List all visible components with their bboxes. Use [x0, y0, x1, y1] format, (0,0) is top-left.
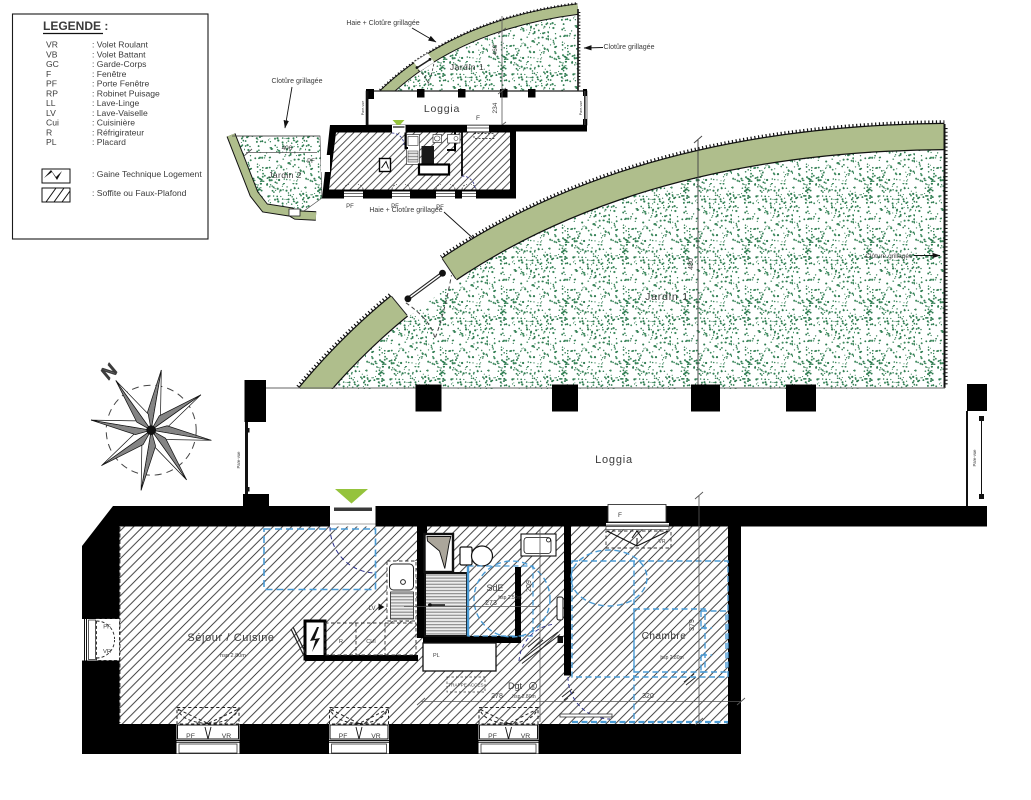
svg-text:: Fenêtre: : Fenêtre	[92, 69, 127, 79]
svg-text:PF: PF	[46, 79, 57, 89]
svg-text:TRAPPE ACCES: TRAPPE ACCES	[448, 683, 483, 688]
svg-text:LEGENDE :: LEGENDE :	[43, 19, 108, 33]
svg-text:Loggia: Loggia	[595, 454, 633, 466]
svg-text:Jardin 1: Jardin 1	[450, 62, 484, 72]
svg-text:LV: LV	[46, 108, 56, 118]
svg-text:PF: PF	[346, 204, 354, 210]
svg-text:PF: PF	[186, 733, 195, 740]
svg-text:Clotûre grillagée: Clotûre grillagée	[604, 44, 655, 51]
svg-text:PF: PF	[488, 733, 497, 740]
svg-text:: Lave-Vaiselle: : Lave-Vaiselle	[92, 108, 148, 118]
svg-text:R: R	[339, 639, 343, 645]
svg-text:Loggia: Loggia	[424, 103, 460, 115]
svg-text:234: 234	[492, 102, 499, 113]
svg-text:Jardin 1: Jardin 1	[645, 291, 689, 303]
svg-text:Clôture grillagée: Clôture grillagée	[865, 253, 913, 260]
svg-text:: Porte Fenêtre: : Porte Fenêtre	[92, 79, 150, 89]
svg-text:RP: RP	[46, 88, 58, 98]
svg-text:: Robinet Puisage: : Robinet Puisage	[92, 88, 160, 98]
svg-text:LL: LL	[46, 98, 56, 108]
svg-text:273: 273	[485, 600, 497, 607]
svg-text:VR: VR	[521, 733, 531, 740]
svg-text:VR: VR	[222, 733, 232, 740]
svg-text:PL: PL	[433, 653, 440, 659]
svg-text:R: R	[46, 127, 52, 137]
svg-text:Pare-vue: Pare-vue	[579, 101, 583, 116]
svg-text:VR: VR	[46, 40, 58, 50]
svg-text:: Cuisinière: : Cuisinière	[92, 118, 135, 128]
svg-text:SdE: SdE	[486, 583, 503, 593]
svg-text:Pare-vue: Pare-vue	[236, 451, 241, 469]
svg-text:: Garde-Corps: : Garde-Corps	[92, 59, 146, 69]
svg-text:278: 278	[491, 693, 503, 700]
svg-text:480: 480	[688, 258, 695, 270]
svg-text:: Soffite ou Faux-Plafond: : Soffite ou Faux-Plafond	[92, 188, 187, 198]
svg-text:Chambre: Chambre	[642, 631, 687, 642]
svg-text:PF: PF	[103, 625, 111, 631]
svg-text:8: 8	[531, 685, 534, 691]
svg-text:Haie + Clotûre grillagée: Haie + Clotûre grillagée	[369, 207, 442, 214]
svg-text:hsp 2.80m: hsp 2.80m	[512, 694, 535, 700]
svg-text:Clotûre grillagée: Clotûre grillagée	[272, 78, 323, 85]
svg-text:: Volet Battant: : Volet Battant	[92, 49, 146, 59]
svg-text:: Lave-Linge: : Lave-Linge	[92, 98, 140, 108]
svg-text:: Volet Roulant: : Volet Roulant	[92, 40, 149, 50]
svg-text:: Gaine Technique Logement: : Gaine Technique Logement	[92, 169, 202, 179]
svg-text:PF: PF	[339, 733, 348, 740]
svg-text:320: 320	[642, 693, 654, 700]
svg-text:406: 406	[282, 145, 293, 152]
svg-text:CUI: CUI	[366, 639, 376, 645]
svg-text:F: F	[476, 115, 480, 122]
svg-text:hsp 2.80m: hsp 2.80m	[220, 653, 246, 659]
svg-text:hsp 2.50m: hsp 2.50m	[498, 595, 521, 601]
svg-text:hsp 2.80m: hsp 2.80m	[660, 655, 683, 661]
svg-text:Jardin 2: Jardin 2	[268, 170, 301, 180]
svg-text:Pare-vue: Pare-vue	[361, 101, 365, 116]
svg-text:: Placard: : Placard	[92, 137, 126, 147]
svg-text:460: 460	[492, 44, 499, 55]
svg-text:Séjour / Cuisine: Séjour / Cuisine	[187, 632, 274, 644]
svg-text:VR: VR	[659, 539, 666, 545]
svg-text:379: 379	[689, 619, 696, 631]
svg-text:LV: LV	[369, 606, 376, 612]
svg-text:Dgt: Dgt	[508, 681, 523, 691]
svg-text:Cui: Cui	[46, 118, 59, 128]
svg-text:F: F	[46, 69, 51, 79]
svg-text:GC: GC	[46, 59, 59, 69]
svg-text:VR: VR	[371, 733, 381, 740]
svg-text:F: F	[618, 512, 622, 519]
svg-text:209: 209	[526, 580, 533, 592]
svg-text:: Réfrigirateur: : Réfrigirateur	[92, 127, 144, 137]
svg-text:VB: VB	[46, 49, 58, 59]
svg-text:Pare-vue: Pare-vue	[972, 449, 977, 467]
svg-text:PF: PF	[307, 159, 315, 165]
svg-text:Haie + Clotûre grillagée: Haie + Clotûre grillagée	[346, 20, 419, 27]
svg-text:PL: PL	[46, 137, 57, 147]
